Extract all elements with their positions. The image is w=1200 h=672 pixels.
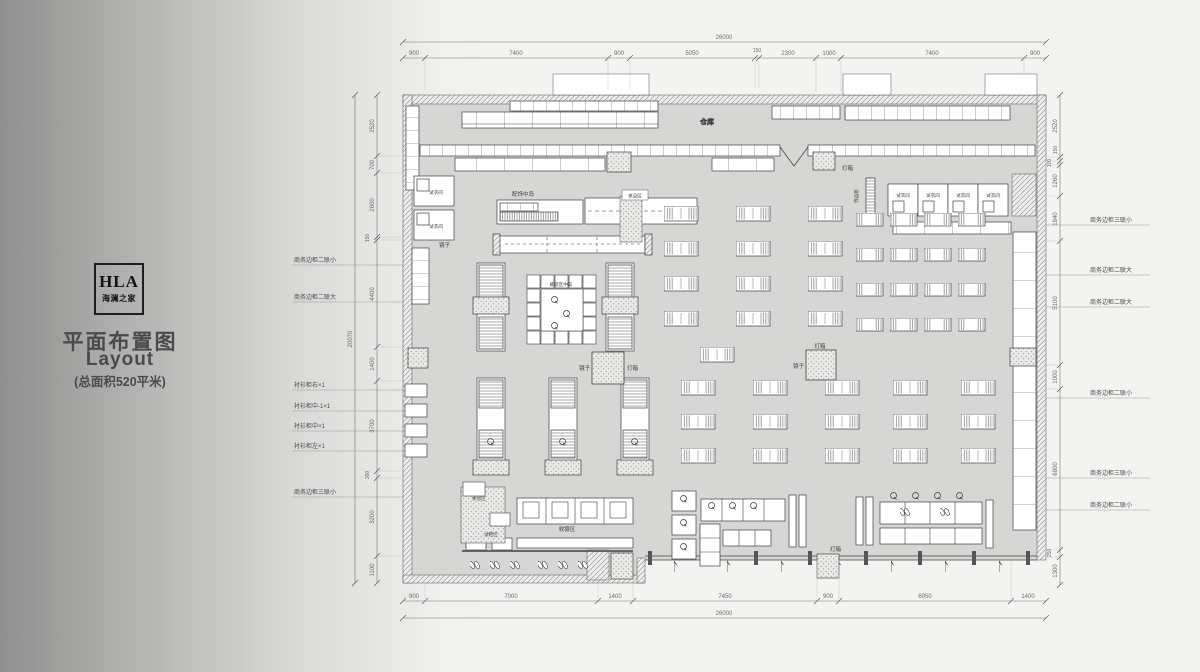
entry-arrow — [779, 561, 784, 572]
entrance-pier — [587, 550, 609, 580]
rest-area-label: 休息区 — [628, 193, 642, 200]
dimensions-left: 2520 700 2600 150 4400 1400 3700 300 320… — [348, 92, 380, 586]
callout-label: 商务边柜三联小 — [1090, 469, 1132, 477]
warehouse-label: 仓库 — [700, 117, 714, 126]
dim-label: 2520 — [370, 119, 376, 133]
dim-label: 150 — [365, 234, 371, 243]
dim-label: 900 — [409, 594, 420, 600]
entry-arrow — [997, 561, 1002, 572]
lightbox-label: 灯箱 — [814, 342, 826, 350]
shoe-area-label: 试鞋区 — [484, 531, 498, 538]
dim-label: 900 — [823, 594, 834, 600]
dim-label: 7450 — [718, 594, 732, 600]
center-island-label: 裤装区中岛 — [550, 281, 573, 288]
dim-label: 1400 — [1021, 594, 1035, 600]
fitting-room-label: 试衣间 — [926, 192, 940, 199]
callout-label: 商务边柜三联小 — [1090, 216, 1132, 224]
dim-label: 150 — [1053, 146, 1059, 155]
lightbox-label: 灯箱 — [830, 545, 842, 553]
dim-label: 1000 — [822, 51, 836, 57]
callout-label: 商务边柜二联大 — [294, 293, 336, 301]
center-island-table: 裤装区中岛 — [527, 275, 596, 344]
mirror-label: 镜子 — [439, 241, 451, 249]
lightbox-column-top — [813, 152, 835, 170]
fitting-room-label: 试衣间 — [429, 189, 443, 196]
callout-label: 衬衫柜中×1 — [294, 422, 326, 430]
dim-label: 7400 — [925, 51, 939, 57]
dim-label: 1260 — [1053, 174, 1059, 188]
dim-label: 900 — [614, 51, 625, 57]
dim-label: 1000 — [1053, 370, 1059, 384]
dim-label: 1840 — [1053, 212, 1059, 226]
dim-label: 900 — [409, 51, 420, 57]
dim-label: 1400 — [370, 357, 376, 371]
cashier-label: 收银区 — [559, 525, 576, 533]
dim-label: 4400 — [370, 287, 376, 301]
dim-overall-bottom: 26000 — [716, 611, 733, 617]
dim-label: 7400 — [509, 51, 523, 57]
dim-label: 6950 — [918, 594, 932, 600]
fitting-room-label: 试衣间 — [896, 192, 910, 199]
column — [1010, 348, 1036, 366]
callouts-left: 商务边柜二联小 商务边柜二联大 衬衫柜右×1 衬衫柜中-1×1 衬衫柜中×1 衬… — [292, 256, 403, 497]
column — [607, 152, 631, 172]
entrance-column — [611, 553, 633, 579]
dim-label: 700 — [370, 159, 376, 170]
callout-label: 商务边柜二联小 — [1090, 501, 1132, 509]
dim-label: 1400 — [608, 594, 622, 600]
dim-label: 7000 — [504, 594, 518, 600]
dim-overall-left: 20070 — [348, 330, 354, 347]
accessory-cabinet-label: 饰品柜 — [853, 189, 860, 203]
dim-label: 150 — [753, 48, 762, 54]
dim-label: 5050 — [685, 51, 699, 57]
fitting-room-label: 试衣间 — [986, 192, 1000, 199]
right-wall-cabinets — [1010, 232, 1036, 530]
dim-label: 900 — [1030, 51, 1041, 57]
dim-label: 250 — [1047, 549, 1053, 558]
callout-label: 商务边柜二联小 — [1090, 389, 1132, 397]
entry-arrow — [943, 561, 948, 572]
callout-label: 商务边柜二联小 — [294, 256, 336, 264]
entry-arrow — [725, 561, 730, 572]
callout-label: 衬衫柜左×1 — [294, 442, 326, 450]
callout-label: 衬衫柜中-1×1 — [294, 402, 331, 410]
lightbox-column-entry — [817, 554, 839, 578]
mirror-label: 镜子 — [579, 364, 591, 372]
fitting-room-label: 试衣间 — [956, 192, 970, 199]
callout-label: 商务边柜三联小 — [294, 488, 336, 496]
column — [592, 352, 624, 384]
callout-label: 衬衫柜右×1 — [294, 381, 326, 389]
column — [806, 350, 836, 380]
dimensions-right: 2520 150 100 1260 1840 5100 1000 6800 25… — [1047, 92, 1063, 588]
dim-label: 3700 — [370, 419, 376, 433]
presentation-board: HLA 海澜之家 平面布置图 Layout (总面积520平米) — [0, 0, 1200, 672]
fitting-room-label: 试衣间 — [429, 223, 443, 230]
dim-overall-top: 26000 — [716, 35, 733, 41]
rest-area-label: 休息区 — [472, 495, 486, 502]
dim-label: 6800 — [1053, 462, 1059, 476]
dim-label: 2520 — [1053, 119, 1059, 133]
dim-label: 2300 — [781, 51, 795, 57]
column — [408, 348, 428, 368]
mirror-label: 镜子 — [793, 362, 805, 370]
dim-label: 2600 — [370, 198, 376, 212]
dimensions-top: 26000 900 7400 900 5050 150 2300 1000 74… — [400, 35, 1049, 61]
entry-arrow — [672, 561, 677, 572]
dim-label: 5100 — [1053, 296, 1059, 310]
dim-label: 3200 — [370, 510, 376, 524]
callout-label: 商务边柜二联大 — [1090, 298, 1132, 306]
accessories-island-label: 配饰中岛 — [512, 190, 535, 198]
dim-label: 1300 — [1053, 564, 1059, 578]
lightbox-label: 灯箱 — [842, 164, 854, 172]
dim-label: 100 — [1047, 159, 1053, 168]
floor-plan-drawing: 仓库 灯箱 试衣间 试衣间 镜子 — [0, 0, 1200, 672]
lightbox-label: 灯箱 — [627, 364, 639, 372]
callout-label: 商务边柜二联大 — [1090, 266, 1132, 274]
dim-label: 1100 — [370, 563, 376, 577]
dimensions-bottom: 900 7000 1400 7450 900 6950 1400 26000 — [400, 594, 1049, 621]
entry-arrow — [889, 561, 894, 572]
dim-label: 300 — [365, 471, 371, 480]
